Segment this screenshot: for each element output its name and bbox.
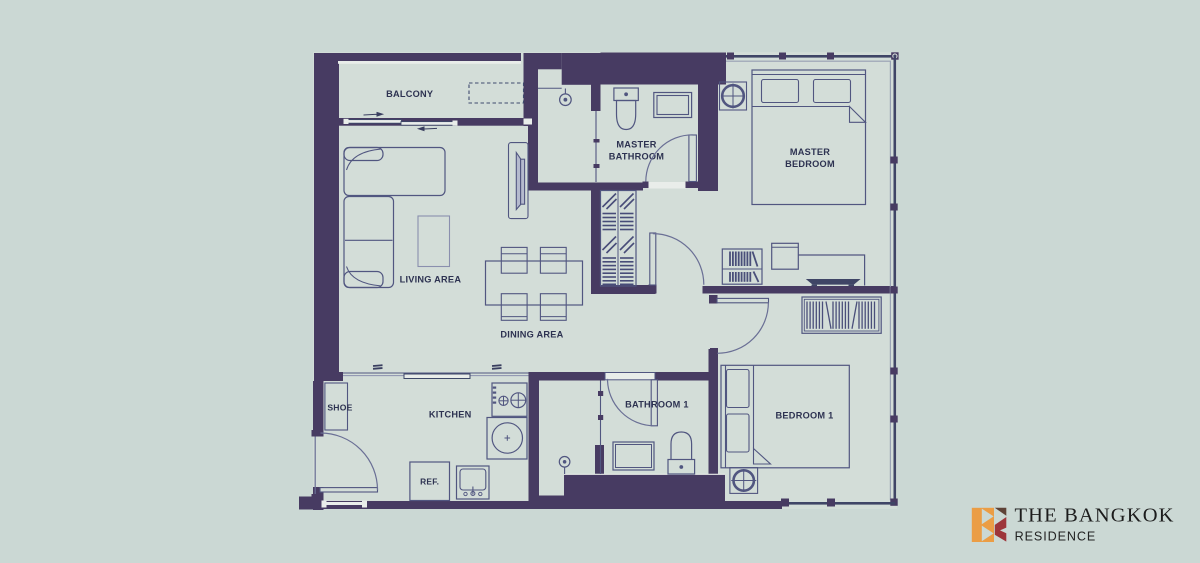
svg-text:LIVING AREA: LIVING AREA [400, 274, 462, 284]
svg-text:DINING AREA: DINING AREA [500, 330, 563, 340]
svg-text:BATHROOM 1: BATHROOM 1 [625, 399, 689, 409]
svg-text:RESIDENCE: RESIDENCE [1015, 529, 1097, 543]
svg-text:MASTER: MASTER [616, 140, 656, 150]
svg-text:THE BANGKOK: THE BANGKOK [1015, 505, 1175, 527]
svg-text:MASTER: MASTER [790, 147, 830, 157]
svg-text:SHOE: SHOE [327, 403, 352, 413]
svg-text:KITCHEN: KITCHEN [429, 409, 472, 419]
svg-text:BEDROOM: BEDROOM [785, 159, 835, 169]
svg-text:BALCONY: BALCONY [386, 89, 433, 99]
svg-text:BEDROOM 1: BEDROOM 1 [776, 410, 834, 420]
svg-text:REF.: REF. [420, 476, 439, 486]
